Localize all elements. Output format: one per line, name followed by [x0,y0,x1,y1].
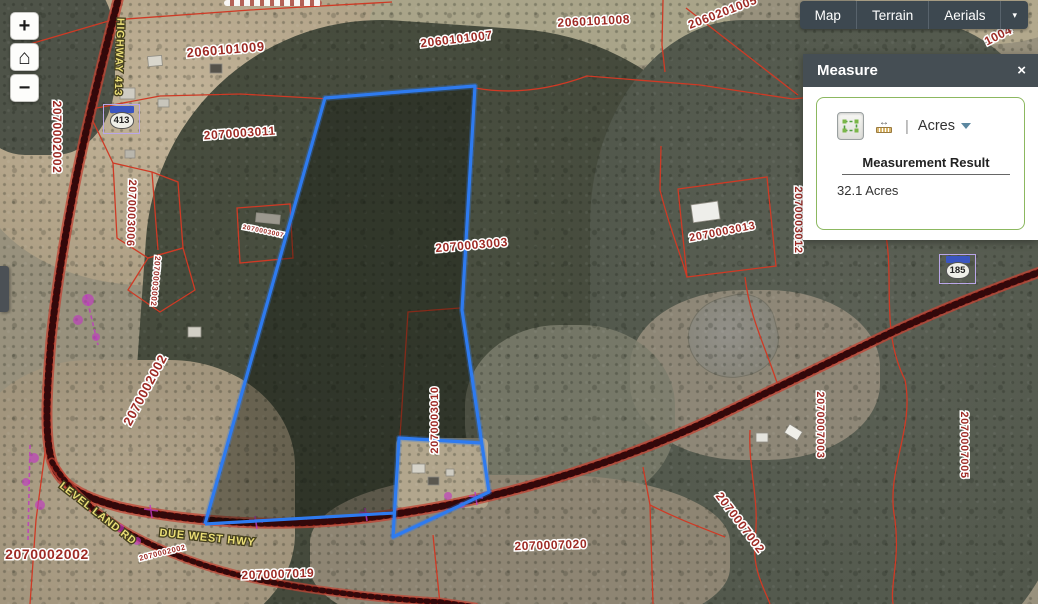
parcel-label: 2070003011 [203,124,276,143]
shield-number: 413 [110,112,134,129]
parcel-label: 2070007019 [241,566,314,583]
zoom-in-button[interactable]: + [10,12,39,40]
parcel-label: 2070003007 [242,224,285,240]
parcel-label: 2070002002 [50,101,64,174]
parcel-label: 2070002002 [5,546,89,562]
highway-shield-413: 413 [103,104,140,134]
measure-tool-row: ↔ | Acres [837,111,1015,141]
basemap-switcher: Map Terrain Aerials ▾ [800,1,1028,29]
units-caret-icon [961,123,971,129]
basemap-terrain-button[interactable]: Terrain [857,1,929,29]
measure-panel-title: Measure [817,62,1017,79]
basemap-aerials-button[interactable]: Aerials [929,1,1001,29]
parcel-label: 2070007005 [958,411,970,478]
parcel-label: 2070003006 [124,179,138,247]
measure-panel: Measure × ↔ [803,54,1038,240]
heading-underline [842,174,1010,175]
home-button[interactable]: ⌂ [10,43,39,71]
zoom-out-button[interactable]: − [10,74,39,102]
parcel-label: 2060201005 [686,0,759,32]
measure-panel-body: ↔ | Acres Measurement Result 32.1 Acres [803,87,1038,240]
map-canvas[interactable]: 2060101009206010100720601010082060201005… [0,0,1038,604]
zoom-controls: + ⌂ − [10,12,39,102]
area-measure-icon [842,119,859,133]
units-label: Acres [918,118,955,134]
distance-measure-button[interactable]: ↔ [876,119,892,133]
ruler-icon [876,127,892,133]
parcel-label: 2070002002 [120,352,170,428]
units-dropdown[interactable]: Acres [918,118,971,134]
parcel-label: 2060101009 [186,39,265,61]
tool-divider: | [905,118,909,135]
measurement-result-value: 32.1 Acres [837,183,1015,198]
basemap-dropdown-caret[interactable]: ▾ [1001,1,1028,29]
measure-tool-box: ↔ | Acres Measurement Result 32.1 Acres [816,97,1025,230]
parcel-label: 2070003002 [149,256,162,307]
area-measure-button[interactable] [837,112,864,140]
measure-panel-header: Measure × [803,54,1038,87]
basemap-map-button[interactable]: Map [800,1,857,29]
parcel-label: 2070007020 [514,537,587,554]
sidebar-collapse-tab[interactable] [0,266,9,312]
parcel-label: 2070003013 [688,220,756,245]
close-icon[interactable]: × [1017,63,1026,78]
parcel-label: 2060101007 [420,28,494,51]
parcel-label: 2070007003 [814,391,826,458]
partial-parcel-label [224,0,322,6]
highway-shield-185: 185 [939,254,976,284]
shield-number: 185 [946,262,970,279]
parcel-label: 2070007002 [713,489,768,556]
parcel-label: 2060101008 [557,12,630,30]
parcel-label: 2070003010 [429,386,441,453]
measurement-result-heading: Measurement Result [837,155,1015,170]
distance-arrows-icon: ↔ [879,119,889,127]
